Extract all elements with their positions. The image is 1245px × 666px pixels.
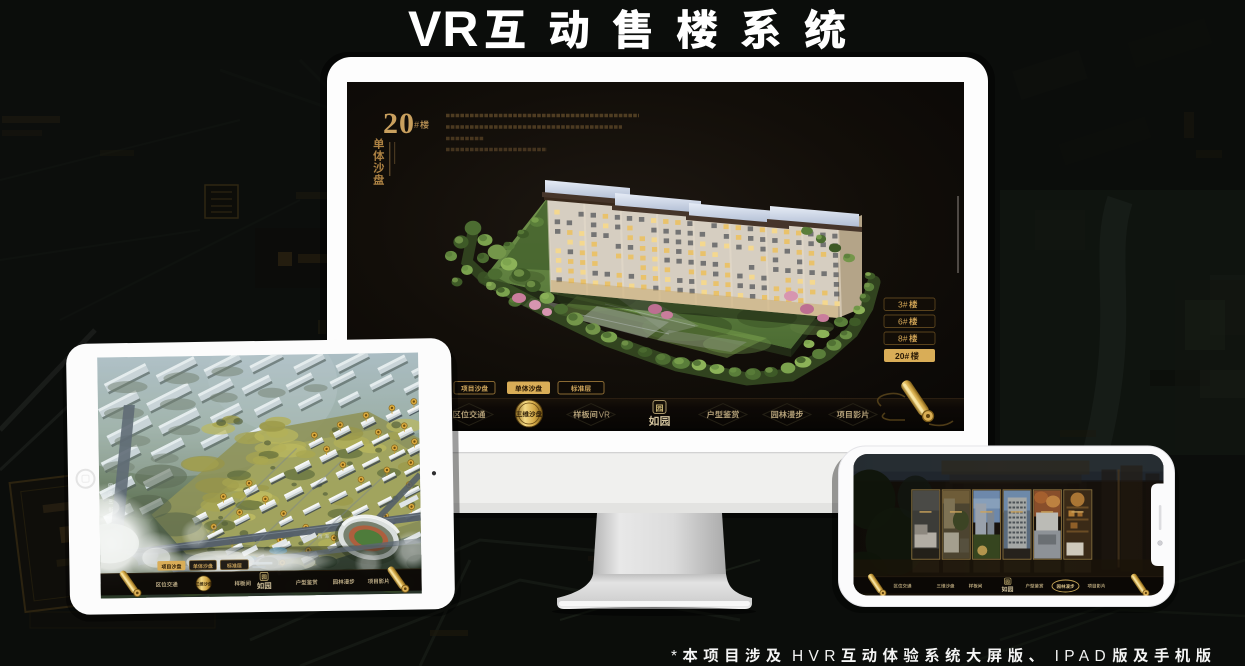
svg-text:20#: 20#	[895, 351, 909, 361]
svg-text:#: #	[414, 120, 419, 130]
svg-text:VR: VR	[408, 1, 479, 57]
svg-text:IPAD: IPAD	[1055, 648, 1111, 665]
svg-text:3#: 3#	[898, 300, 908, 310]
svg-text:6#: 6#	[898, 317, 908, 327]
svg-text:*: *	[671, 648, 682, 665]
svg-text:8#: 8#	[898, 334, 908, 344]
svg-text:VR: VR	[599, 411, 610, 420]
svg-text:20: 20	[383, 107, 415, 140]
svg-text:HVR: HVR	[792, 648, 841, 665]
